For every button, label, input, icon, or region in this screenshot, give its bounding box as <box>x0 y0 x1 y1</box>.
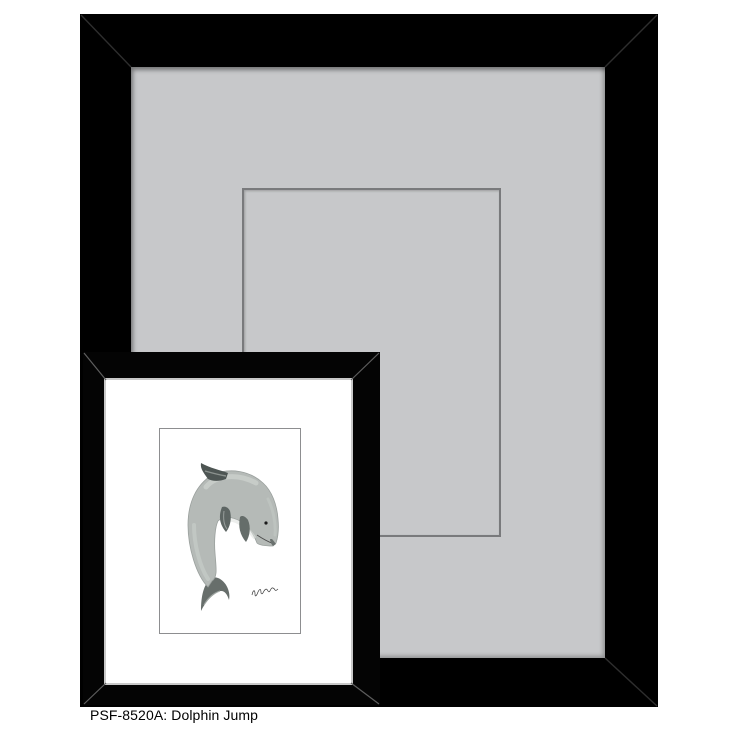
dolphin-illustration <box>160 429 300 633</box>
product-caption: PSF-8520A: Dolphin Jump <box>90 707 258 725</box>
artist-signature-mark <box>252 588 278 596</box>
dolphin-eye <box>264 521 267 524</box>
dolphin-artwork <box>160 429 300 633</box>
product-image: PSF-8520A: Dolphin Jump <box>0 0 738 738</box>
dolphin-pectoral-fin-front <box>220 507 231 532</box>
dolphin-dorsal-fin <box>201 463 228 481</box>
framed-print <box>83 352 380 705</box>
framed-print-white-mat <box>106 380 351 683</box>
